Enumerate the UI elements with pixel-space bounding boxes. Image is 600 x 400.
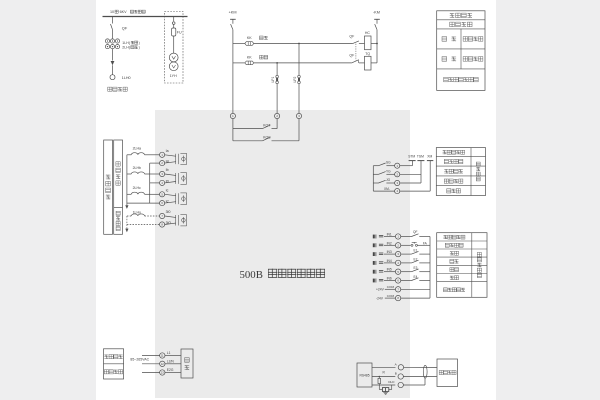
svg-text:1YH: 1YH	[170, 74, 177, 78]
svg-text:2LHa: 2LHa	[133, 147, 141, 151]
svg-text:IN6: IN6	[387, 277, 392, 281]
svg-text:YG: YG	[386, 169, 391, 173]
svg-text:KOC: KOC	[263, 136, 271, 140]
svg-text:Ib: Ib	[166, 168, 169, 172]
svg-text:HC: HC	[365, 31, 371, 35]
svg-text:): )	[139, 46, 140, 50]
svg-text:3I0: 3I0	[166, 210, 171, 214]
svg-text:KOT: KOT	[263, 123, 270, 127]
svg-text:2LHb: 2LHb	[133, 166, 141, 170]
svg-text:10: 10	[110, 10, 114, 14]
svg-text:DLD: DLD	[388, 380, 395, 384]
svg-text:COM: COM	[387, 285, 395, 289]
svg-text:QF: QF	[413, 230, 417, 234]
svg-text:+KM: +KM	[229, 10, 237, 14]
svg-text:E3: E3	[414, 266, 418, 270]
svg-text:TSM: TSM	[417, 155, 424, 159]
svg-text:85~265VAC: 85~265VAC	[130, 357, 149, 361]
svg-text:E4: E4	[414, 275, 418, 279]
svg-text:KK: KK	[247, 56, 252, 60]
svg-text:LP2: LP2	[293, 76, 297, 82]
svg-text:COM: COM	[387, 294, 395, 298]
svg-text:QF: QF	[349, 53, 354, 57]
svg-text:IN5: IN5	[387, 268, 392, 272]
svg-text:JG: JG	[386, 178, 391, 182]
svg-text:Ic: Ic	[166, 188, 169, 192]
svg-text:LP1: LP1	[271, 76, 275, 82]
svg-text:TQ: TQ	[365, 52, 370, 56]
svg-text:KK: KK	[247, 36, 252, 40]
svg-text:IN4: IN4	[387, 259, 392, 263]
svg-text:+24V: +24V	[376, 288, 385, 292]
svg-text:FU: FU	[177, 30, 182, 34]
svg-text:RS485: RS485	[359, 374, 369, 378]
svg-text:-24V: -24V	[376, 296, 384, 300]
svg-text:L2/N: L2/N	[167, 360, 175, 364]
svg-text:500B: 500B	[240, 269, 263, 281]
svg-text:1LH(: 1LH(	[122, 41, 130, 45]
svg-text:SG: SG	[386, 161, 391, 165]
svg-text:-KM: -KM	[373, 10, 380, 14]
svg-text:E1: E1	[414, 249, 418, 253]
svg-text:): )	[139, 41, 140, 45]
svg-text:6KV: 6KV	[120, 10, 128, 14]
svg-text:IN2: IN2	[387, 241, 392, 245]
svg-text:2LH(: 2LH(	[122, 46, 130, 50]
svg-text:E2G: E2G	[167, 368, 174, 372]
svg-text:1LH0: 1LH0	[122, 76, 131, 80]
svg-text:QF: QF	[349, 34, 354, 38]
svg-text:IN3: IN3	[387, 250, 392, 254]
svg-text:2LHc: 2LHc	[133, 186, 141, 190]
svg-text:STM: STM	[408, 155, 415, 159]
svg-text:XM: XM	[427, 155, 432, 159]
svg-text:E2: E2	[414, 257, 418, 261]
svg-text:B: B	[395, 372, 397, 376]
svg-text:Ia: Ia	[166, 149, 169, 153]
svg-text:IN1: IN1	[387, 233, 392, 237]
svg-text:XM-: XM-	[384, 187, 390, 191]
svg-text:L1: L1	[167, 351, 171, 355]
svg-text:QF: QF	[122, 25, 128, 30]
